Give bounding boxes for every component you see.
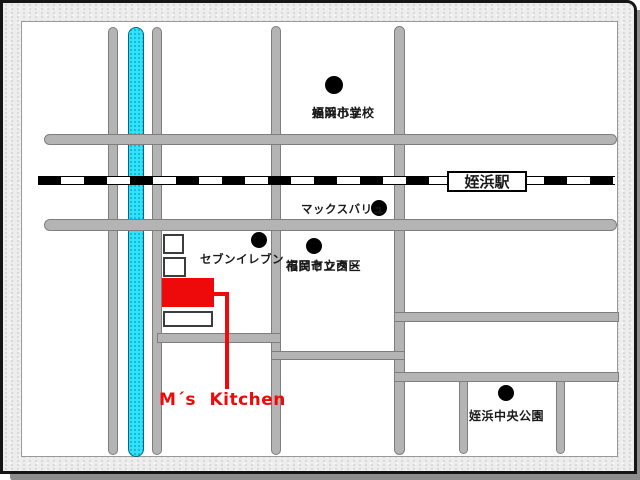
kitchen-pointer-vertical	[225, 292, 229, 389]
seven-eleven-label: セブンイレブン	[200, 253, 284, 266]
river	[128, 27, 144, 457]
ms-kitchen-building	[162, 278, 214, 307]
school-dot-icon	[325, 76, 343, 94]
page-background: 姪浜駅 福岡市立 姪浜小学校 マックスバリュ セブンイレブン	[0, 0, 640, 480]
building-small-2	[163, 257, 186, 277]
railway-line	[38, 176, 615, 185]
road-vertical-6	[556, 376, 565, 454]
road-horizontal-3	[157, 333, 281, 343]
road-horizontal-4	[271, 351, 405, 360]
road-horizontal-2	[44, 219, 617, 231]
civic-center-label-line2: 市民センター	[286, 259, 361, 274]
road-horizontal-6	[394, 372, 619, 382]
road-horizontal-1	[44, 134, 617, 145]
building-small-1	[163, 234, 184, 254]
road-horizontal-5	[394, 312, 619, 322]
station-name: 姪浜駅	[464, 171, 509, 192]
map-frame: 姪浜駅 福岡市立 姪浜小学校 マックスバリュ セブンイレブン	[0, 0, 637, 474]
civic-center-dot-icon	[306, 238, 322, 254]
school-label-line2: 姪浜小学校	[312, 106, 375, 121]
map-canvas: 姪浜駅 福岡市立 姪浜小学校 マックスバリュ セブンイレブン	[21, 21, 618, 457]
frame-shadow-bottom	[10, 474, 640, 480]
road-vertical-1	[108, 27, 118, 455]
road-vertical-5	[459, 376, 468, 454]
road-vertical-4	[394, 26, 405, 455]
maxvalu-label: マックスバリュ	[301, 203, 385, 216]
ms-kitchen-label: M´s Kitchen	[159, 390, 286, 410]
seven-eleven-dot-icon	[251, 232, 267, 248]
building-small-3	[163, 311, 213, 327]
park-dot-icon	[498, 385, 514, 401]
station-label-box: 姪浜駅	[447, 171, 527, 192]
park-label: 姪浜中央公園	[469, 409, 544, 424]
